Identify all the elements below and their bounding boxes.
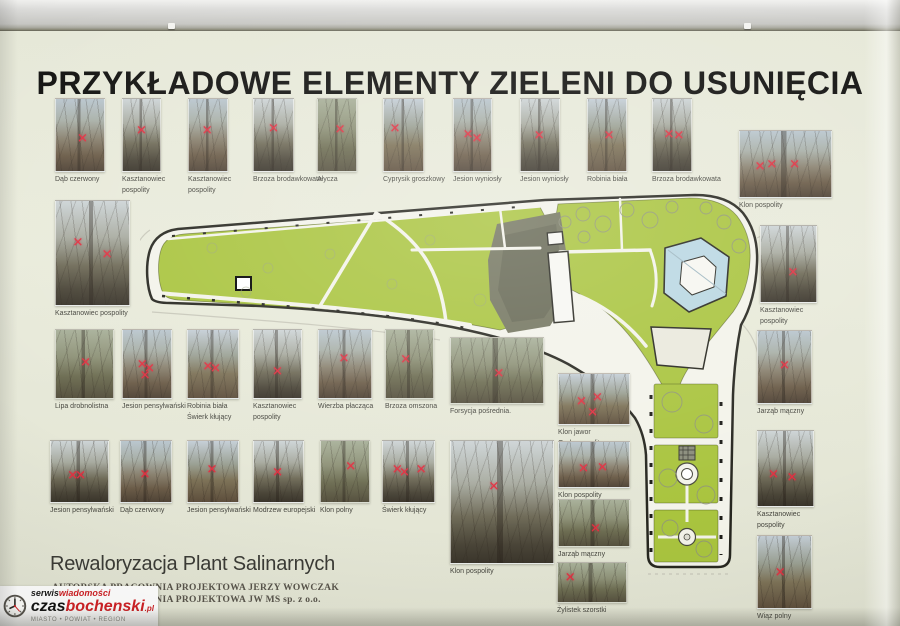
tree-photo-image: ✕ — [320, 440, 370, 503]
logo-text: serwiswiadomości czasbochenski.pl MIASTO… — [31, 589, 154, 623]
tree-photo: ✕Żylistek szorstki — [557, 562, 625, 617]
tree-photo-image: ✕ — [383, 98, 424, 172]
removal-x-mark: ✕ — [102, 249, 113, 262]
tree-photo-label: Forsycja pośrednia. — [450, 407, 511, 418]
tree-photo: ✕✕Kasztanowiec pospolity — [757, 430, 812, 531]
removal-x-mark: ✕ — [576, 395, 587, 408]
tree-photo-image: ✕✕ — [558, 441, 630, 488]
tree-photo: ✕Jarząb mączny — [558, 499, 628, 561]
tree-photo-image: ✕ — [450, 440, 554, 564]
tree-photo: ✕✕Kasztanowiec pospolity — [55, 200, 128, 320]
tree-photo-image: ✕ — [253, 329, 302, 399]
tree-photo-image: ✕ — [587, 98, 627, 172]
tree-photo-label: Lipa drobnolistna — [55, 402, 108, 413]
tree-photo-label: Dąb czerwony — [55, 175, 99, 186]
tree-photo-label: Kasztanowiec pospolity — [253, 402, 296, 423]
tree-photo: ✕Jesion wyniosły — [520, 98, 558, 186]
removal-x-mark: ✕ — [207, 464, 218, 477]
tree-photo-label: Klon pospolity — [739, 201, 783, 212]
tree-photo-label: Modrzew europejski — [253, 506, 315, 517]
tree-photo: ✕✕✕Klon jawor Grab pospolity — [558, 373, 628, 449]
tree-photo-label: Jesion wyniosły — [520, 175, 569, 186]
tree-photo: ✕Brzoza brodawkowata — [253, 98, 292, 186]
tree-photo: ✕Jarząb mączny — [757, 330, 810, 418]
tree-photo-label: Świerk kłujący — [382, 506, 426, 517]
tree-photo: ✕Modrzew europejski — [253, 440, 302, 517]
tree-photo-image: ✕ — [55, 98, 105, 172]
tree-photo: ✕Cyprysik groszkowy — [383, 98, 422, 186]
rail-clip — [168, 23, 175, 29]
tree-photo-label: Cyprysik groszkowy — [383, 175, 445, 186]
tree-photo: ✕Kasztanowiec pospolity — [760, 225, 815, 327]
removal-x-mark: ✕ — [565, 571, 576, 584]
tree-photo-image: ✕✕✕ — [122, 329, 172, 399]
removal-x-mark: ✕ — [766, 159, 777, 172]
tree-photo: ✕Klon pospolity — [450, 440, 552, 578]
tree-photo-image: ✕✕✕ — [739, 130, 832, 198]
removal-x-mark: ✕ — [389, 123, 400, 136]
removal-x-mark: ✕ — [578, 463, 589, 476]
tree-photo-image: ✕✕ — [757, 430, 814, 507]
poster-title: PRZYKŁADOWE ELEMENTY ZIELENI DO USUNIĘCI… — [0, 65, 900, 102]
removal-x-mark: ✕ — [399, 466, 410, 479]
tree-photo-label: Jarząb mączny — [558, 550, 605, 561]
tree-photo-label: Robinia biała — [587, 175, 627, 186]
tree-photo: ✕✕Jesion wyniosły — [453, 98, 490, 186]
tree-photo-label: Ałycza — [317, 175, 338, 186]
logo-word-serwis: serwis — [31, 588, 59, 598]
tree-photo-image: ✕ — [55, 329, 114, 399]
removal-x-mark: ✕ — [534, 130, 545, 143]
tree-photo-label: Jesion pensylwański — [50, 506, 114, 517]
project-heading: Rewaloryzacja Plant Salinarnych — [50, 553, 335, 576]
removal-x-mark: ✕ — [400, 353, 411, 366]
removal-x-mark: ✕ — [339, 352, 350, 365]
removal-x-mark: ✕ — [755, 161, 766, 174]
tree-photo: ✕Lipa drobnolistna — [55, 329, 112, 413]
tree-photo-image: ✕✕ — [652, 98, 692, 172]
tree-photo: ✕Ałycza — [317, 98, 355, 186]
clock-icon — [2, 588, 28, 624]
tree-photo-label: Brzoza omszona — [385, 402, 437, 413]
tree-photo: ✕Wierzba płacząca — [318, 329, 370, 413]
removal-x-mark: ✕ — [789, 159, 800, 172]
tree-photo: ✕✕Jesion pensylwański — [50, 440, 107, 517]
logo-word-czas: czas — [31, 598, 66, 615]
removal-x-mark: ✕ — [202, 125, 213, 138]
tree-photo-label: Klon pospolity — [450, 567, 494, 578]
removal-x-mark: ✕ — [603, 130, 614, 143]
tree-photo: ✕Wiąz polny — [757, 535, 810, 623]
removal-x-mark: ✕ — [272, 466, 283, 479]
tree-photo: ✕✕✕Jesion pensylwański — [122, 329, 170, 413]
tree-photo-label: Kasztanowiec pospolity — [757, 510, 800, 531]
tree-photo: ✕✕✕Klon pospolity — [739, 130, 830, 212]
tree-photo: ✕Forsycja pośrednia. — [450, 337, 542, 418]
tree-photo-image: ✕ — [520, 98, 560, 172]
removal-x-mark: ✕ — [592, 392, 603, 405]
tree-photo-image: ✕ — [253, 440, 304, 503]
tree-photo-label: Robinia biała Świerk kłujący — [187, 402, 231, 423]
removal-x-mark: ✕ — [272, 366, 283, 379]
logo-word-pl: .pl — [145, 604, 154, 613]
tree-photo-image: ✕ — [557, 562, 627, 603]
tree-photo-label: Wiąz polny — [757, 612, 791, 623]
tree-photo-label: Żylistek szorstki — [557, 606, 606, 617]
tree-photo: ✕Robinia biała — [587, 98, 625, 186]
tree-photo-label: Kasztanowiec pospolity — [122, 175, 165, 196]
removal-x-mark: ✕ — [416, 464, 427, 477]
tree-photo: ✕Kasztanowiec pospolity — [188, 98, 226, 196]
removal-x-mark: ✕ — [140, 370, 151, 383]
removal-x-mark: ✕ — [136, 125, 147, 138]
removal-x-mark: ✕ — [587, 407, 598, 420]
tree-photo: ✕Dąb czerwony — [120, 440, 170, 517]
removal-x-mark: ✕ — [471, 132, 482, 145]
removal-x-mark: ✕ — [493, 367, 504, 380]
tree-photo-image: ✕ — [120, 440, 172, 503]
removal-x-mark: ✕ — [77, 132, 88, 145]
tree-photo: ✕✕✕Świerk kłujący — [382, 440, 433, 517]
removal-x-mark: ✕ — [488, 481, 499, 494]
tree-photo-image: ✕ — [318, 329, 372, 399]
tree-photo-image: ✕✕ — [453, 98, 492, 172]
information-board: PRZYKŁADOWE ELEMENTY ZIELENI DO USUNIĘCI… — [0, 0, 900, 626]
board-top-rail — [0, 0, 900, 31]
tree-photo-label: Brzoza brodawkowata — [253, 175, 322, 186]
tree-photo: ✕✕Klon pospolity — [558, 441, 628, 502]
tree-photo-label: Wierzba płacząca — [318, 402, 373, 413]
removal-x-mark: ✕ — [597, 462, 608, 475]
tree-photo-image: ✕ — [558, 499, 630, 547]
tree-photo: ✕Brzoza omszona — [385, 329, 432, 413]
tree-photo-label: Kasztanowiec pospolity — [760, 306, 803, 327]
tree-photo: ✕✕Robinia biała Świerk kłujący — [187, 329, 237, 423]
tree-photo-image: ✕ — [122, 98, 161, 172]
removal-x-mark: ✕ — [590, 522, 601, 535]
tree-photo-label: Kasztanowiec pospolity — [55, 309, 128, 320]
tree-photo-image: ✕ — [188, 98, 228, 172]
tree-photo-image: ✕ — [253, 98, 294, 172]
tree-photo-label: Jesion pensylwański — [122, 402, 186, 413]
tree-photo-label: Kasztanowiec pospolity — [188, 175, 231, 196]
removal-x-mark: ✕ — [268, 123, 279, 136]
tree-photo-image: ✕ — [187, 440, 239, 503]
tree-photo: ✕Jesion pensylwański — [187, 440, 237, 517]
tree-photo: ✕Klon polny — [320, 440, 368, 517]
tree-photo: ✕✕Brzoza brodawkowata — [652, 98, 690, 186]
tree-photo-label: Dąb czerwony — [120, 506, 164, 517]
removal-x-mark: ✕ — [335, 123, 346, 136]
tree-photo-image: ✕✕ — [55, 200, 130, 306]
removal-x-mark: ✕ — [775, 567, 786, 580]
tree-photo-image: ✕ — [385, 329, 434, 399]
tree-photo-image: ✕✕✕ — [558, 373, 630, 425]
removal-x-mark: ✕ — [779, 359, 790, 372]
removal-x-mark: ✕ — [768, 468, 779, 481]
czasbochenski-logo: serwiswiadomości czasbochenski.pl MIASTO… — [0, 586, 158, 626]
removal-x-mark: ✕ — [75, 470, 86, 483]
removal-x-mark: ✕ — [787, 267, 798, 280]
removal-x-mark: ✕ — [210, 362, 221, 375]
tree-photo-image: ✕✕ — [50, 440, 109, 503]
tree-photo-label: Jarząb mączny — [757, 407, 804, 418]
tree-photo-label: Jesion pensylwański — [187, 506, 251, 517]
tree-photo-image: ✕✕✕ — [382, 440, 435, 503]
logo-tagline: MIASTO • POWIAT • REGION — [31, 617, 154, 623]
removal-x-mark: ✕ — [673, 130, 684, 143]
tree-photo-image: ✕ — [450, 337, 544, 404]
tree-photo: ✕Kasztanowiec pospolity — [122, 98, 159, 196]
removal-x-mark: ✕ — [72, 236, 83, 249]
logo-word-bochenski: bochenski — [66, 598, 145, 615]
tree-photo-image: ✕✕ — [187, 329, 239, 399]
logo-word-wiadomosci: wiadomości — [59, 588, 111, 598]
removal-x-mark: ✕ — [787, 471, 798, 484]
removal-x-mark: ✕ — [80, 356, 91, 369]
tree-photo-image: ✕ — [757, 330, 812, 404]
tree-photo-image: ✕ — [760, 225, 817, 303]
tree-photo-label: Klon polny — [320, 506, 353, 517]
tree-photo-label: Brzoza brodawkowata — [652, 175, 721, 186]
tree-photo-image: ✕ — [757, 535, 812, 609]
rail-clip — [744, 23, 751, 29]
tree-photo: ✕Kasztanowiec pospolity — [253, 329, 300, 423]
tree-photo: ✕Dąb czerwony — [55, 98, 103, 186]
tree-photo-image: ✕ — [317, 98, 357, 172]
removal-x-mark: ✕ — [345, 460, 356, 473]
tree-photo-label: Jesion wyniosły — [453, 175, 502, 186]
removal-x-mark: ✕ — [140, 468, 151, 481]
